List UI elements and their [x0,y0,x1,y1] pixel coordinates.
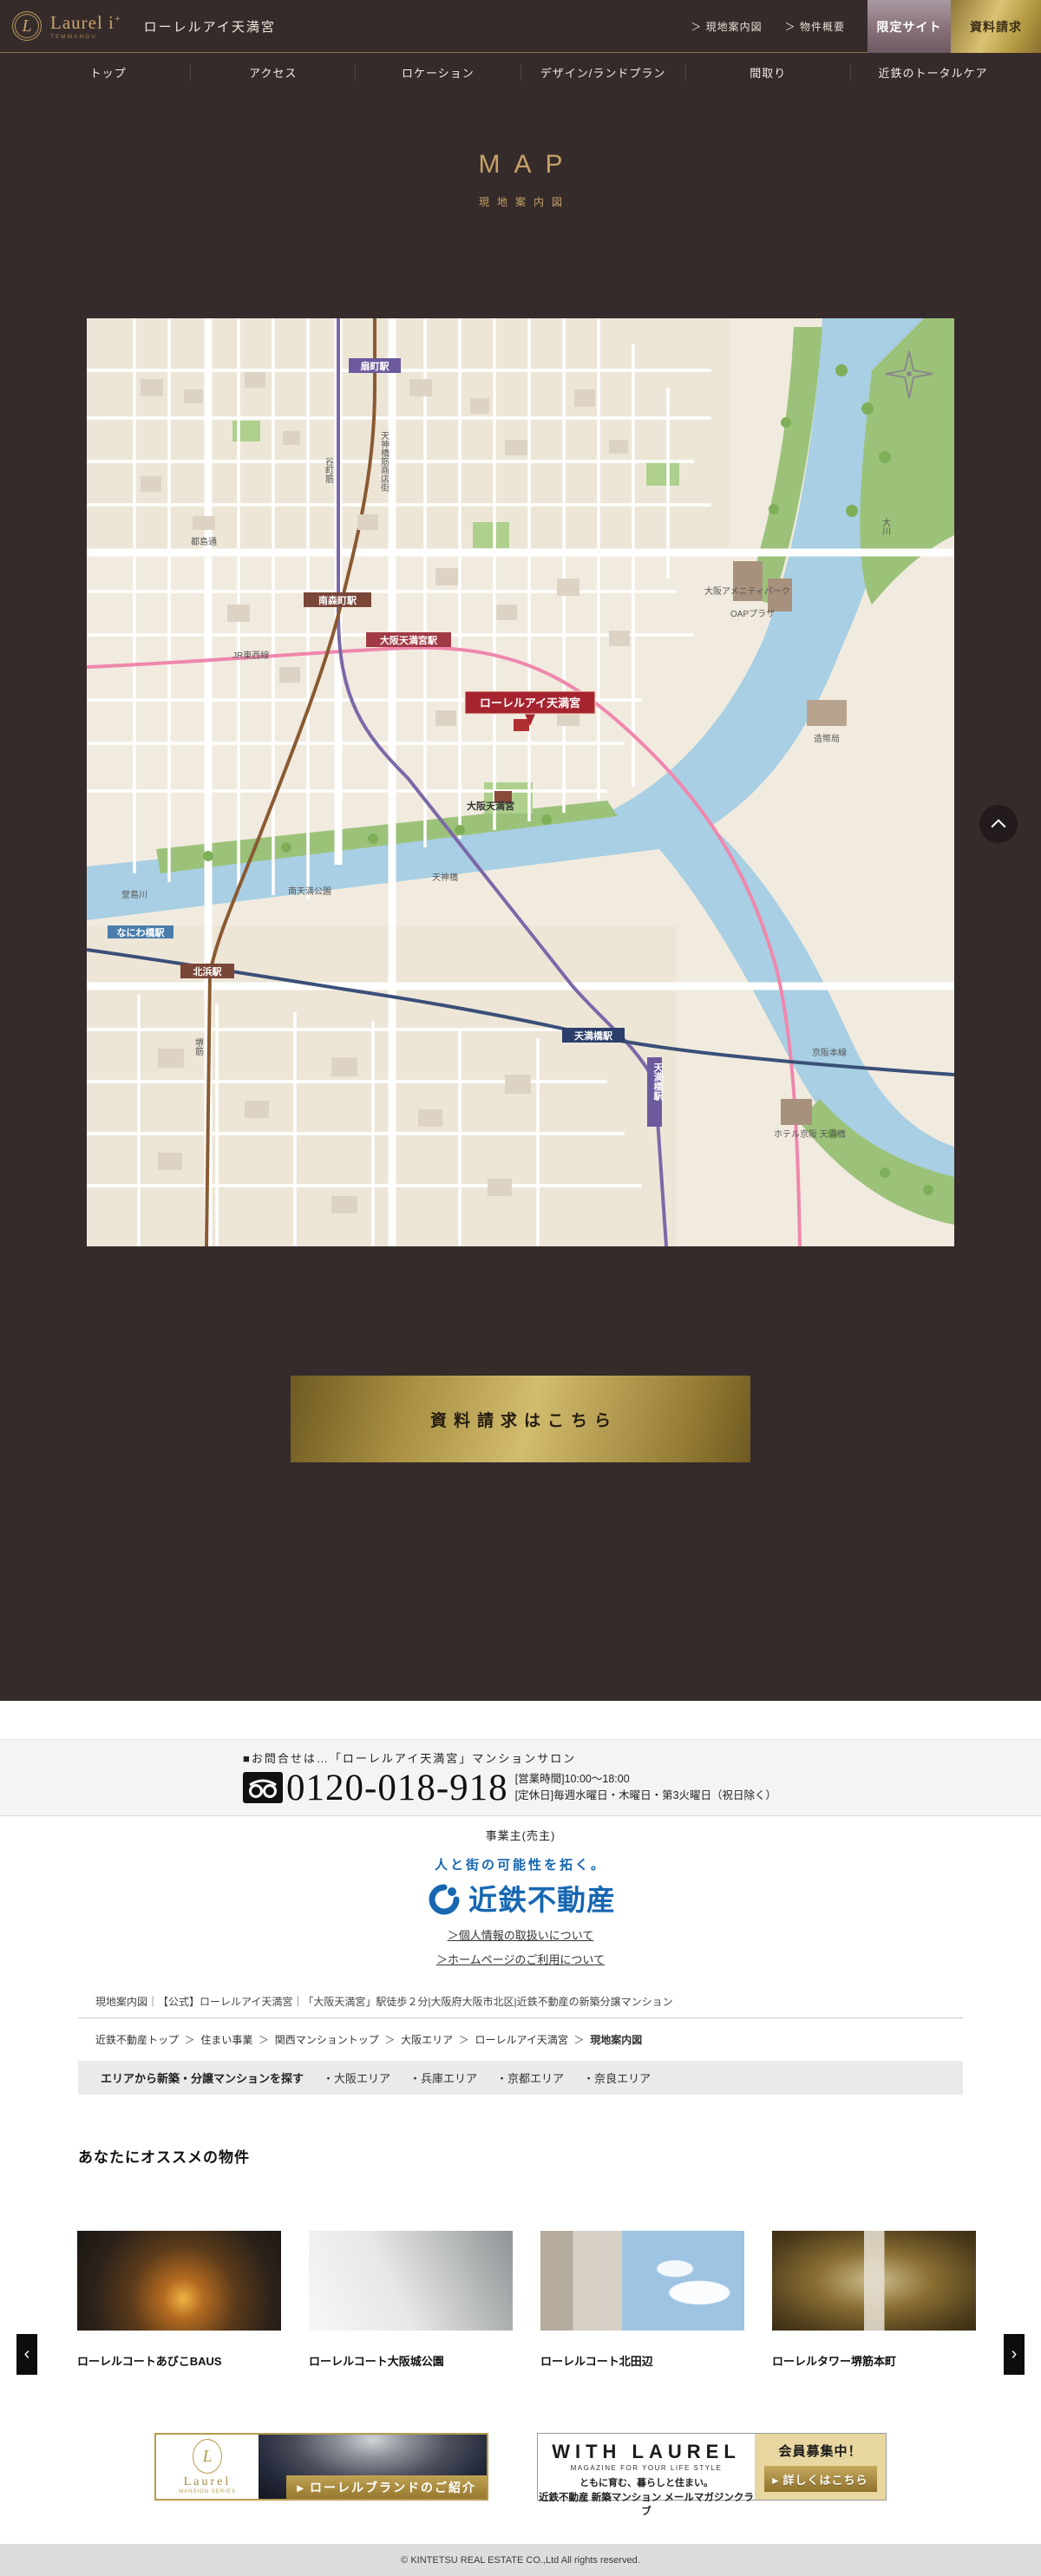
kintetsu-logo-icon [425,1880,463,1915]
laurel-logo-sub: MANSION SERIES [179,2489,236,2494]
map-road-label: 天神橋筋商店街 [379,431,390,493]
property-photo [77,2231,281,2331]
map-road-label: 堺筋 [193,1038,204,1056]
map-image: 都島通 天神橋筋商店街 谷町筋 堺筋 大川 堂島川 南天満公園 天神橋 大阪アメ… [87,318,954,1246]
header-link-outline[interactable]: ＞ 物件概要 [785,19,845,34]
footer: © KINTETSU REAL ESTATE CO.,Ltd All right… [0,2544,1041,2576]
nav-design[interactable]: デザイン/ランドプラン [520,64,685,81]
contact-heading: ■お問合せは…「ローレルアイ天満宮」マンションサロン [243,1749,798,1766]
breadcrumb-property[interactable]: ローレルアイ天満宮 [475,2034,590,2046]
map-line-label: JR東西線 [232,650,269,661]
laurel-monogram-icon: L [12,11,42,41]
laurel-logo-name: Laurel [184,2475,232,2489]
laurel-brand-banner[interactable]: L Laurel MANSION SERIES ▸ ローレルブランドのご紹介 [154,2433,488,2501]
svg-text:扇町駅: 扇町駅 [361,360,390,372]
svg-text:ローレルアイ天満宮: ローレルアイ天満宮 [480,696,580,709]
nav-top[interactable]: トップ [26,64,190,81]
breadcrumb-kansai[interactable]: 関西マンショントップ [275,2034,401,2046]
company-logo[interactable]: 近鉄不動産 [0,1877,1041,1919]
request-materials-button[interactable]: 資料請求 [951,0,1041,53]
property-card-name: ローレルタワー堺筋本町 [772,2352,976,2369]
chevron-up-icon [992,819,1006,834]
terms-link[interactable]: ＞ホームページのご利用について [0,1951,1041,1967]
svg-text:天満橋駅: 天満橋駅 [574,1030,612,1042]
svg-text:南森町駅: 南森町駅 [318,594,357,606]
property-card[interactable]: ローレルタワー堺筋本町 [772,2231,976,2369]
map-poi-label: 大阪アメニティパーク [704,585,790,597]
station-temmabashi-keihan: 天満橋駅 [562,1028,625,1043]
svg-text:なにわ橋駅: なにわ橋駅 [117,926,165,938]
privacy-link[interactable]: ＞個人情報の取扱いについて [0,1926,1041,1943]
back-to-top-button[interactable] [979,805,1018,843]
breadcrumb: 近鉄不動産トップ住まい事業関西マンショントップ大阪エリアローレルアイ天満宮現地案… [78,2018,963,2047]
station-naniwabashi: なにわ橋駅 [108,925,173,938]
with-laurel-title: WITH LAUREL [538,2441,755,2463]
map-road-label: 谷町筋 [324,457,334,484]
map-poi-label: ホテル京阪 天満橋 [774,1128,846,1140]
brand-name: Laurel i+ [50,13,121,32]
area-link-kyoto[interactable]: ・京都エリア [496,2069,564,2086]
map-line-label: 京阪本線 [812,1047,847,1058]
with-laurel-banner[interactable]: WITH LAUREL MAGAZINE FOR YOUR LIFE STYLE… [537,2433,887,2501]
station-osakatemmangu: 大阪天満宮駅 [366,632,451,647]
map-section: MAP 現地案内図 [0,91,1041,1701]
company-role-label: 事業主(売主) [0,1827,1041,1843]
area-search-bar: エリアから新築・分譲マンションを探す ・大阪エリア ・兵庫エリア ・京都エリア … [78,2061,963,2095]
brand-logo[interactable]: L Laurel i+ TEMMANGU ローレルアイ天満宮 [12,11,276,41]
property-card-name: ローレルコート北田辺 [540,2352,744,2369]
area-search-label: エリアから新築・分譲マンションを探す [101,2069,304,2086]
map-poi-label: OAPプラザ [730,609,775,619]
laurel-banner-photo: ▸ ローレルブランドのご紹介 [259,2435,487,2499]
svg-text:北浜駅: 北浜駅 [193,965,222,977]
business-hours: [営業時間]10:00～18:00 [515,1771,776,1788]
property-card[interactable]: ローレルコート大阪城公園 [309,2231,513,2369]
with-laurel-subtitle: MAGAZINE FOR YOUR LIFE STYLE [538,2464,755,2472]
svg-text:天満橋駅: 天満橋駅 [652,1062,665,1102]
with-laurel-club: 近鉄不動産 新築マンション メールマガジンクラブ [538,2490,755,2518]
nav-totalcare[interactable]: 近鉄のトータルケア [850,64,1015,81]
breadcrumb-area: 現地案内図｜【公式】ローレルアイ天満宮｜「大阪天満宮」駅徒歩２分|大阪府大阪市北… [78,1987,963,2095]
property-photo [772,2231,976,2331]
limited-site-button[interactable]: 限定サイト [867,0,951,53]
nav-access[interactable]: アクセス [190,64,355,81]
global-nav: トップ アクセス ロケーション デザイン/ランドプラン 間取り 近鉄のトータルケ… [0,53,1041,91]
company-name: 近鉄不動産 [468,1877,616,1919]
property-card[interactable]: ローレルコートあびこBAUS [77,2231,281,2369]
station-kitahama: 北浜駅 [180,964,234,978]
property-card[interactable]: ローレルコート北田辺 [540,2231,744,2369]
area-link-osaka[interactable]: ・大阪エリア [323,2069,390,2086]
laurel-banner-ribbon: ▸ ローレルブランドのご紹介 [286,2475,487,2499]
request-materials-cta-button[interactable]: 資料請求はこちら [291,1376,750,1462]
property-card-name: ローレルコート大阪城公園 [309,2352,513,2369]
company-slogan: 人と街の可能性を拓く。 [0,1855,1041,1873]
area-map: 都島通 天神橋筋商店街 谷町筋 堺筋 大川 堂島川 南天満公園 天神橋 大阪アメ… [87,318,954,1246]
member-recruit-badge: 会員募集中！ [778,2442,861,2460]
station-temmabashi-metro: 天満橋駅 [647,1057,665,1127]
map-road-label: 都島通 [191,536,217,547]
area-link-nara[interactable]: ・奈良エリア [583,2069,651,2086]
property-name: ローレルアイ天満宮 [144,17,276,36]
property-card-name: ローレルコートあびこBAUS [77,2352,281,2369]
brand-plus: + [115,12,121,24]
station-minamimorimachi: 南森町駅 [304,592,371,607]
freedial-icon [243,1772,283,1803]
map-park-label: 南天満公園 [288,886,331,897]
station-ogimachi: 扇町駅 [349,358,401,373]
page-meta-title: 現地案内図｜【公式】ローレルアイ天満宮｜「大阪天満宮」駅徒歩２分|大阪府大阪市北… [78,1987,963,2018]
banner-row: L Laurel MANSION SERIES ▸ ローレルブランドのご紹介 W… [0,2433,1041,2501]
copyright: © KINTETSU REAL ESTATE CO.,Ltd All right… [401,2555,640,2566]
holidays: [定休日]毎週水曜日・木曜日・第3火曜日（祝日除く） [515,1788,776,1804]
carousel-prev-button[interactable]: ‹ [16,2334,37,2375]
map-poi-label: 造幣局 [814,733,840,744]
page-subtitle: 現地案内図 [0,194,1041,209]
recommend-section: あなたにオススメの物件 ローレルコートあびこBAUS ローレルコート大阪城公園 … [0,2145,1041,2369]
breadcrumb-sumai[interactable]: 住まい事業 [200,2034,274,2046]
property-photo [540,2231,744,2331]
nav-floorplan[interactable]: 間取り [685,64,850,81]
page-title: MAP [0,150,1041,180]
property-photo [309,2231,513,2331]
brand-subtitle: TEMMANGU [50,34,121,40]
site-header: L Laurel i+ TEMMANGU ローレルアイ天満宮 ＞ 現地案内図 ＞… [0,0,1041,53]
member-detail-button[interactable]: ▸ 詳しくはこちら [764,2466,877,2492]
with-laurel-copy: ともに育む、暮らしと住まい。 [538,2475,755,2489]
map-river-label: 大川 [881,517,891,535]
company-section: 事業主(売主) 人と街の可能性を拓く。 近鉄不動産 ＞個人情報の取扱いについて … [0,1816,1041,1987]
map-river-label: 堂島川 [121,889,147,900]
breadcrumb-osaka-area[interactable]: 大阪エリア [401,2034,475,2046]
svg-text:大阪天満宮駅: 大阪天満宮駅 [380,634,437,646]
contact-section: ■お問合せは…「ローレルアイ天満宮」マンションサロン 0120-018-918 … [0,1739,1041,1816]
nav-location[interactable]: ロケーション [355,64,520,81]
recommend-heading: あなたにオススメの物件 [78,2145,1041,2167]
breadcrumb-home[interactable]: 近鉄不動産トップ [95,2034,200,2046]
section-divider [0,1701,1041,1739]
header-link-map[interactable]: ＞ 現地案内図 [691,19,762,34]
map-bridge-label: 天神橋 [432,872,458,883]
area-link-hyogo[interactable]: ・兵庫エリア [409,2069,477,2086]
map-shrine-label: 大阪天満宮 [467,800,514,812]
carousel-next-button[interactable]: › [1004,2334,1025,2375]
breadcrumb-current: 現地案内図 [590,2034,642,2046]
laurel-oval-logo-icon: L [193,2439,222,2474]
phone-number[interactable]: 0120-018-918 [286,1769,508,1807]
